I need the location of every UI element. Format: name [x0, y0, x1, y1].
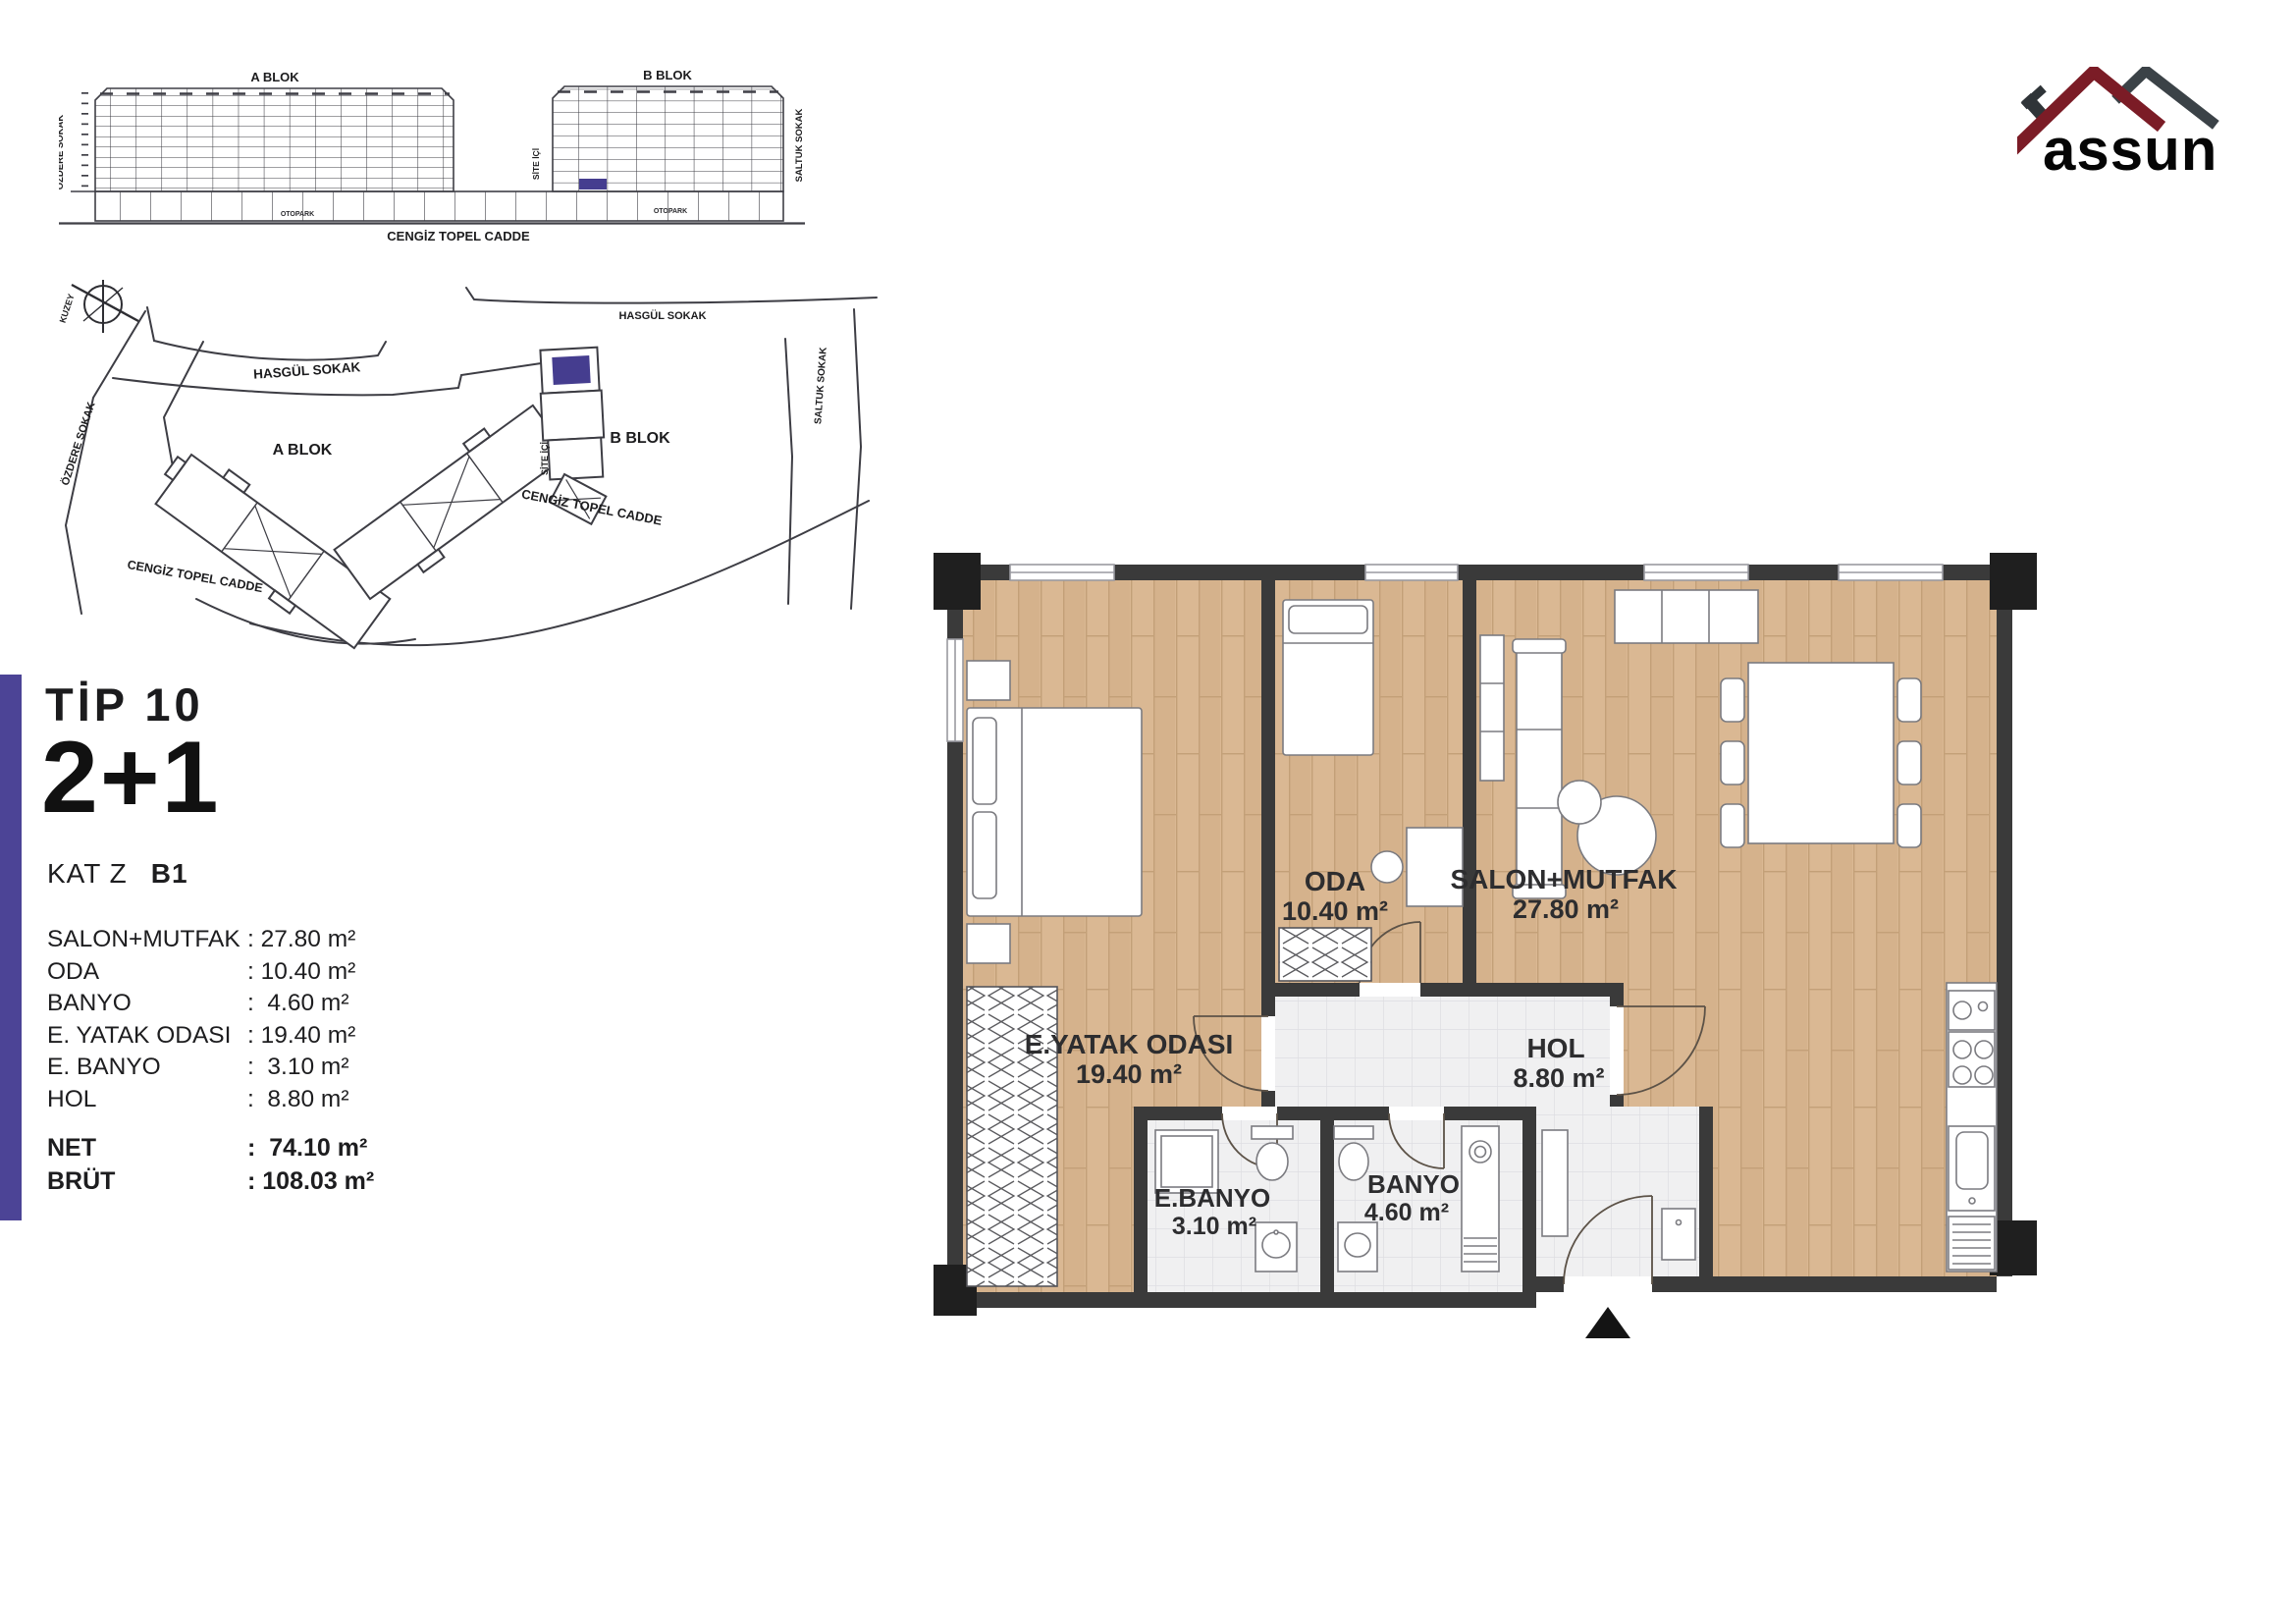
room-value: : 8.80 m²	[247, 1086, 348, 1112]
banyo-label: BANYO	[1367, 1169, 1460, 1199]
otopark-label-b: OTOPARK	[654, 208, 687, 215]
hol-area: 8.80 m²	[1513, 1063, 1604, 1093]
room-label: SALON+MUTFAK	[47, 924, 247, 956]
net-label: NET	[47, 1131, 247, 1164]
unit-layout-title: 2+1	[41, 720, 220, 837]
parking-strip: OTOPARK OTOPARK	[59, 191, 805, 224]
nightstand	[967, 924, 1010, 963]
double-bed	[967, 708, 1142, 916]
ozdere-sokak-map-label: ÖZDERE SOKAK	[59, 401, 98, 487]
accent-bar	[0, 675, 22, 1220]
otopark-label-a: OTOPARK	[281, 211, 314, 218]
room-value: : 3.10 m²	[247, 1054, 348, 1080]
page-canvas: A BLOK B BLOK OTOPARK OTOPARK ÖZDERE SOK…	[0, 0, 2296, 1624]
brand-logo: assun	[2017, 67, 2292, 204]
brut-value: : 108.03 m²	[247, 1167, 374, 1195]
site-ici-map-label: SİTE İÇİ	[540, 442, 550, 475]
site-location-map: KUZEY	[54, 280, 879, 673]
ebanyo-label: E.BANYO	[1154, 1183, 1270, 1213]
saltuk-sokak-elevation-label: SALTUK SOKAK	[794, 108, 805, 182]
room-label: E. YATAK ODASI	[47, 1020, 247, 1053]
b-blok-map-label: B BLOK	[610, 430, 670, 447]
room-label: E. BANYO	[47, 1052, 247, 1084]
room-row: E. BANYO: 3.10 m²	[47, 1052, 355, 1084]
master-bedroom-label: E.YATAK ODASI	[1025, 1029, 1234, 1059]
single-bed	[1283, 600, 1373, 755]
north-compass-icon	[72, 280, 138, 333]
room-row: SALON+MUTFAK: 27.80 m²	[47, 924, 355, 956]
site-ici-elevation-label: SİTE İÇİ	[531, 148, 541, 180]
room-value: : 4.60 m²	[247, 990, 348, 1016]
highlighted-unit-elevation	[579, 179, 607, 189]
site-elevation-drawing: A BLOK B BLOK OTOPARK OTOPARK ÖZDERE SOK…	[59, 54, 844, 255]
nightstand	[967, 661, 1010, 700]
floor-unit-label: KAT ZB1	[47, 858, 188, 890]
room-label: ODA	[47, 956, 247, 989]
salon-area: 27.80 m²	[1513, 894, 1619, 924]
tv-unit	[1480, 635, 1504, 781]
floor-label: KAT Z	[47, 858, 128, 889]
ozdere-sokak-elevation-label: ÖZDERE SOKAK	[59, 115, 66, 190]
oda-wardrobe	[1279, 928, 1371, 981]
room-value: : 27.80 m²	[247, 926, 355, 952]
oda-area: 10.40 m²	[1282, 896, 1388, 926]
brut-row: BRÜT: 108.03 m²	[47, 1164, 374, 1198]
north-label: KUZEY	[58, 293, 77, 324]
hol-label: HOL	[1526, 1033, 1584, 1063]
ebanyo-area: 3.10 m²	[1172, 1213, 1256, 1240]
b-blok-elevation-label: B BLOK	[643, 68, 692, 82]
elevation-a-blok: A BLOK	[95, 70, 454, 191]
oda-label: ODA	[1305, 866, 1365, 896]
sofa	[1513, 639, 1566, 898]
room-value: : 10.40 m²	[247, 958, 355, 985]
a-blok-footprint	[142, 398, 575, 656]
sideboard	[1615, 590, 1758, 643]
hasgul-sokak-label-2: HASGÜL SOKAK	[253, 359, 361, 382]
hasgul-sokak-label-1: HASGÜL SOKAK	[618, 309, 706, 322]
banyo-area: 4.60 m²	[1364, 1199, 1449, 1226]
master-bedroom-area: 19.40 m²	[1076, 1059, 1182, 1089]
net-value: : 74.10 m²	[247, 1134, 367, 1162]
side-table	[1558, 781, 1601, 824]
room-row: ODA: 10.40 m²	[47, 956, 355, 989]
logo-wordmark: assun	[2043, 117, 2217, 183]
room-label: BANYO	[47, 988, 247, 1020]
unit-number-label: B1	[151, 858, 188, 889]
elevation-b-blok: B BLOK	[553, 68, 783, 191]
cengiz-topel-elevation-label: CENGİZ TOPEL CADDE	[387, 229, 530, 244]
a-blok-map-label: A BLOK	[273, 442, 333, 459]
room-row: E. YATAK ODASI: 19.40 m²	[47, 1020, 355, 1053]
salon-label: SALON+MUTFAK	[1451, 864, 1678, 894]
floor-level-ticks	[81, 92, 88, 187]
a-blok-elevation-label: A BLOK	[250, 70, 299, 84]
kitchen-sink	[1949, 1126, 1995, 1270]
room-row: BANYO: 4.60 m²	[47, 988, 355, 1020]
entrance-arrow-icon	[1585, 1307, 1630, 1338]
room-value: : 19.40 m²	[247, 1022, 355, 1049]
brut-label: BRÜT	[47, 1164, 247, 1198]
floor-plan: ODA 10.40 m² SALON+MUTFAK 27.80 m² E.YAT…	[928, 545, 2047, 1394]
room-row: HOL: 8.80 m²	[47, 1084, 355, 1116]
dining-table-set	[1721, 663, 1921, 847]
saltuk-sokak-map-label: SALTUK SOKAK	[813, 346, 829, 424]
room-label: HOL	[47, 1084, 247, 1116]
net-row: NET: 74.10 m²	[47, 1131, 374, 1164]
highlighted-unit-sitemap	[552, 355, 590, 385]
totals-block: NET: 74.10 m² BRÜT: 108.03 m²	[47, 1131, 374, 1198]
room-area-list: SALON+MUTFAK: 27.80 m² ODA: 10.40 m² BAN…	[47, 924, 355, 1115]
